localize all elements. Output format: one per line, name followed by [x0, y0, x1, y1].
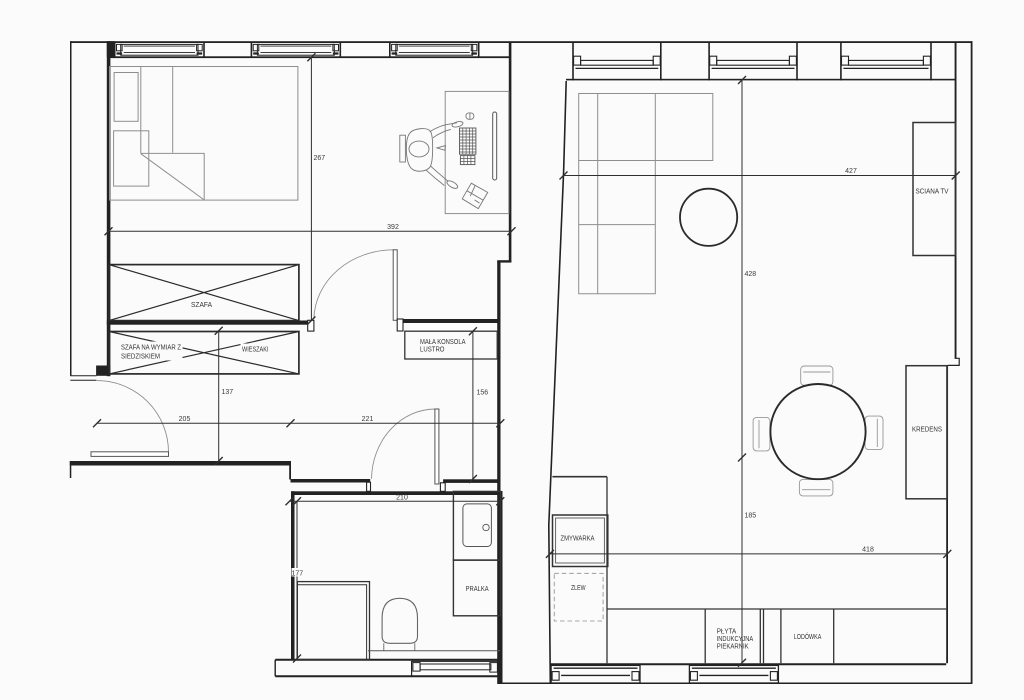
- svg-text:267: 267: [314, 155, 326, 162]
- svg-text:427: 427: [845, 168, 857, 175]
- svg-text:ZLEW: ZLEW: [571, 583, 586, 592]
- svg-text:221: 221: [362, 416, 374, 423]
- svg-text:LODÓWKA: LODÓWKA: [794, 632, 822, 641]
- svg-text:PRALKA: PRALKA: [466, 584, 489, 593]
- svg-text:428: 428: [745, 271, 757, 278]
- svg-text:177: 177: [292, 571, 304, 578]
- svg-text:137: 137: [222, 389, 234, 396]
- svg-text:SCIANA TV: SCIANA TV: [916, 189, 949, 196]
- svg-text:SZAFA: SZAFA: [191, 300, 212, 309]
- svg-text:LUSTRO: LUSTRO: [420, 345, 445, 354]
- svg-text:210: 210: [396, 494, 408, 501]
- svg-text:PIEKARNIK: PIEKARNIK: [717, 642, 749, 651]
- svg-text:392: 392: [387, 224, 399, 231]
- svg-text:KREDENS: KREDENS: [912, 425, 942, 434]
- svg-text:ZMYWARKA: ZMYWARKA: [561, 534, 595, 543]
- svg-text:WIESZAKI: WIESZAKI: [242, 345, 269, 354]
- svg-text:185: 185: [745, 513, 757, 520]
- svg-text:SIEDZISKIEM: SIEDZISKIEM: [121, 352, 160, 361]
- svg-text:205: 205: [179, 416, 191, 423]
- svg-text:SZAFA NA WYMIAR Z: SZAFA NA WYMIAR Z: [121, 343, 181, 352]
- svg-text:156: 156: [477, 390, 489, 397]
- svg-text:418: 418: [862, 547, 874, 554]
